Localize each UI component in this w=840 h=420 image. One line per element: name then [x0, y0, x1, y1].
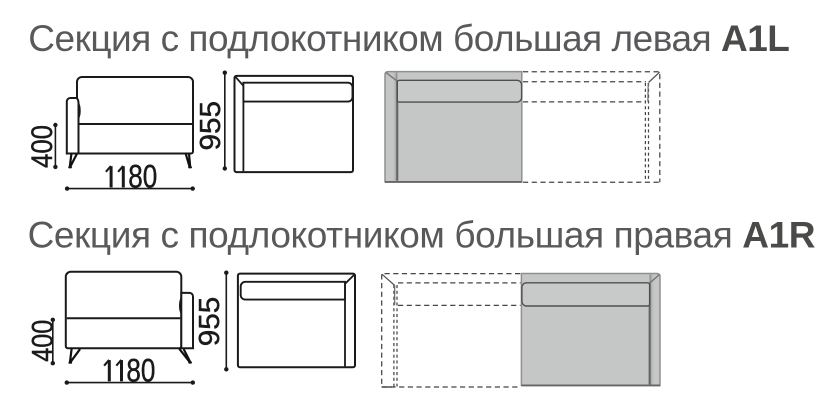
svg-text:955: 955 — [195, 101, 227, 151]
svg-text:Секция с подлокотником большая: Секция с подлокотником большая правая A1… — [28, 214, 816, 255]
svg-text:80: 80 — [128, 158, 157, 194]
svg-text:80: 80 — [126, 352, 155, 388]
svg-text:Секция с подлокотником большая: Секция с подлокотником большая левая A1L — [28, 18, 789, 59]
svg-text:400: 400 — [26, 320, 59, 362]
svg-text:955: 955 — [194, 297, 226, 347]
svg-text:400: 400 — [26, 125, 59, 168]
